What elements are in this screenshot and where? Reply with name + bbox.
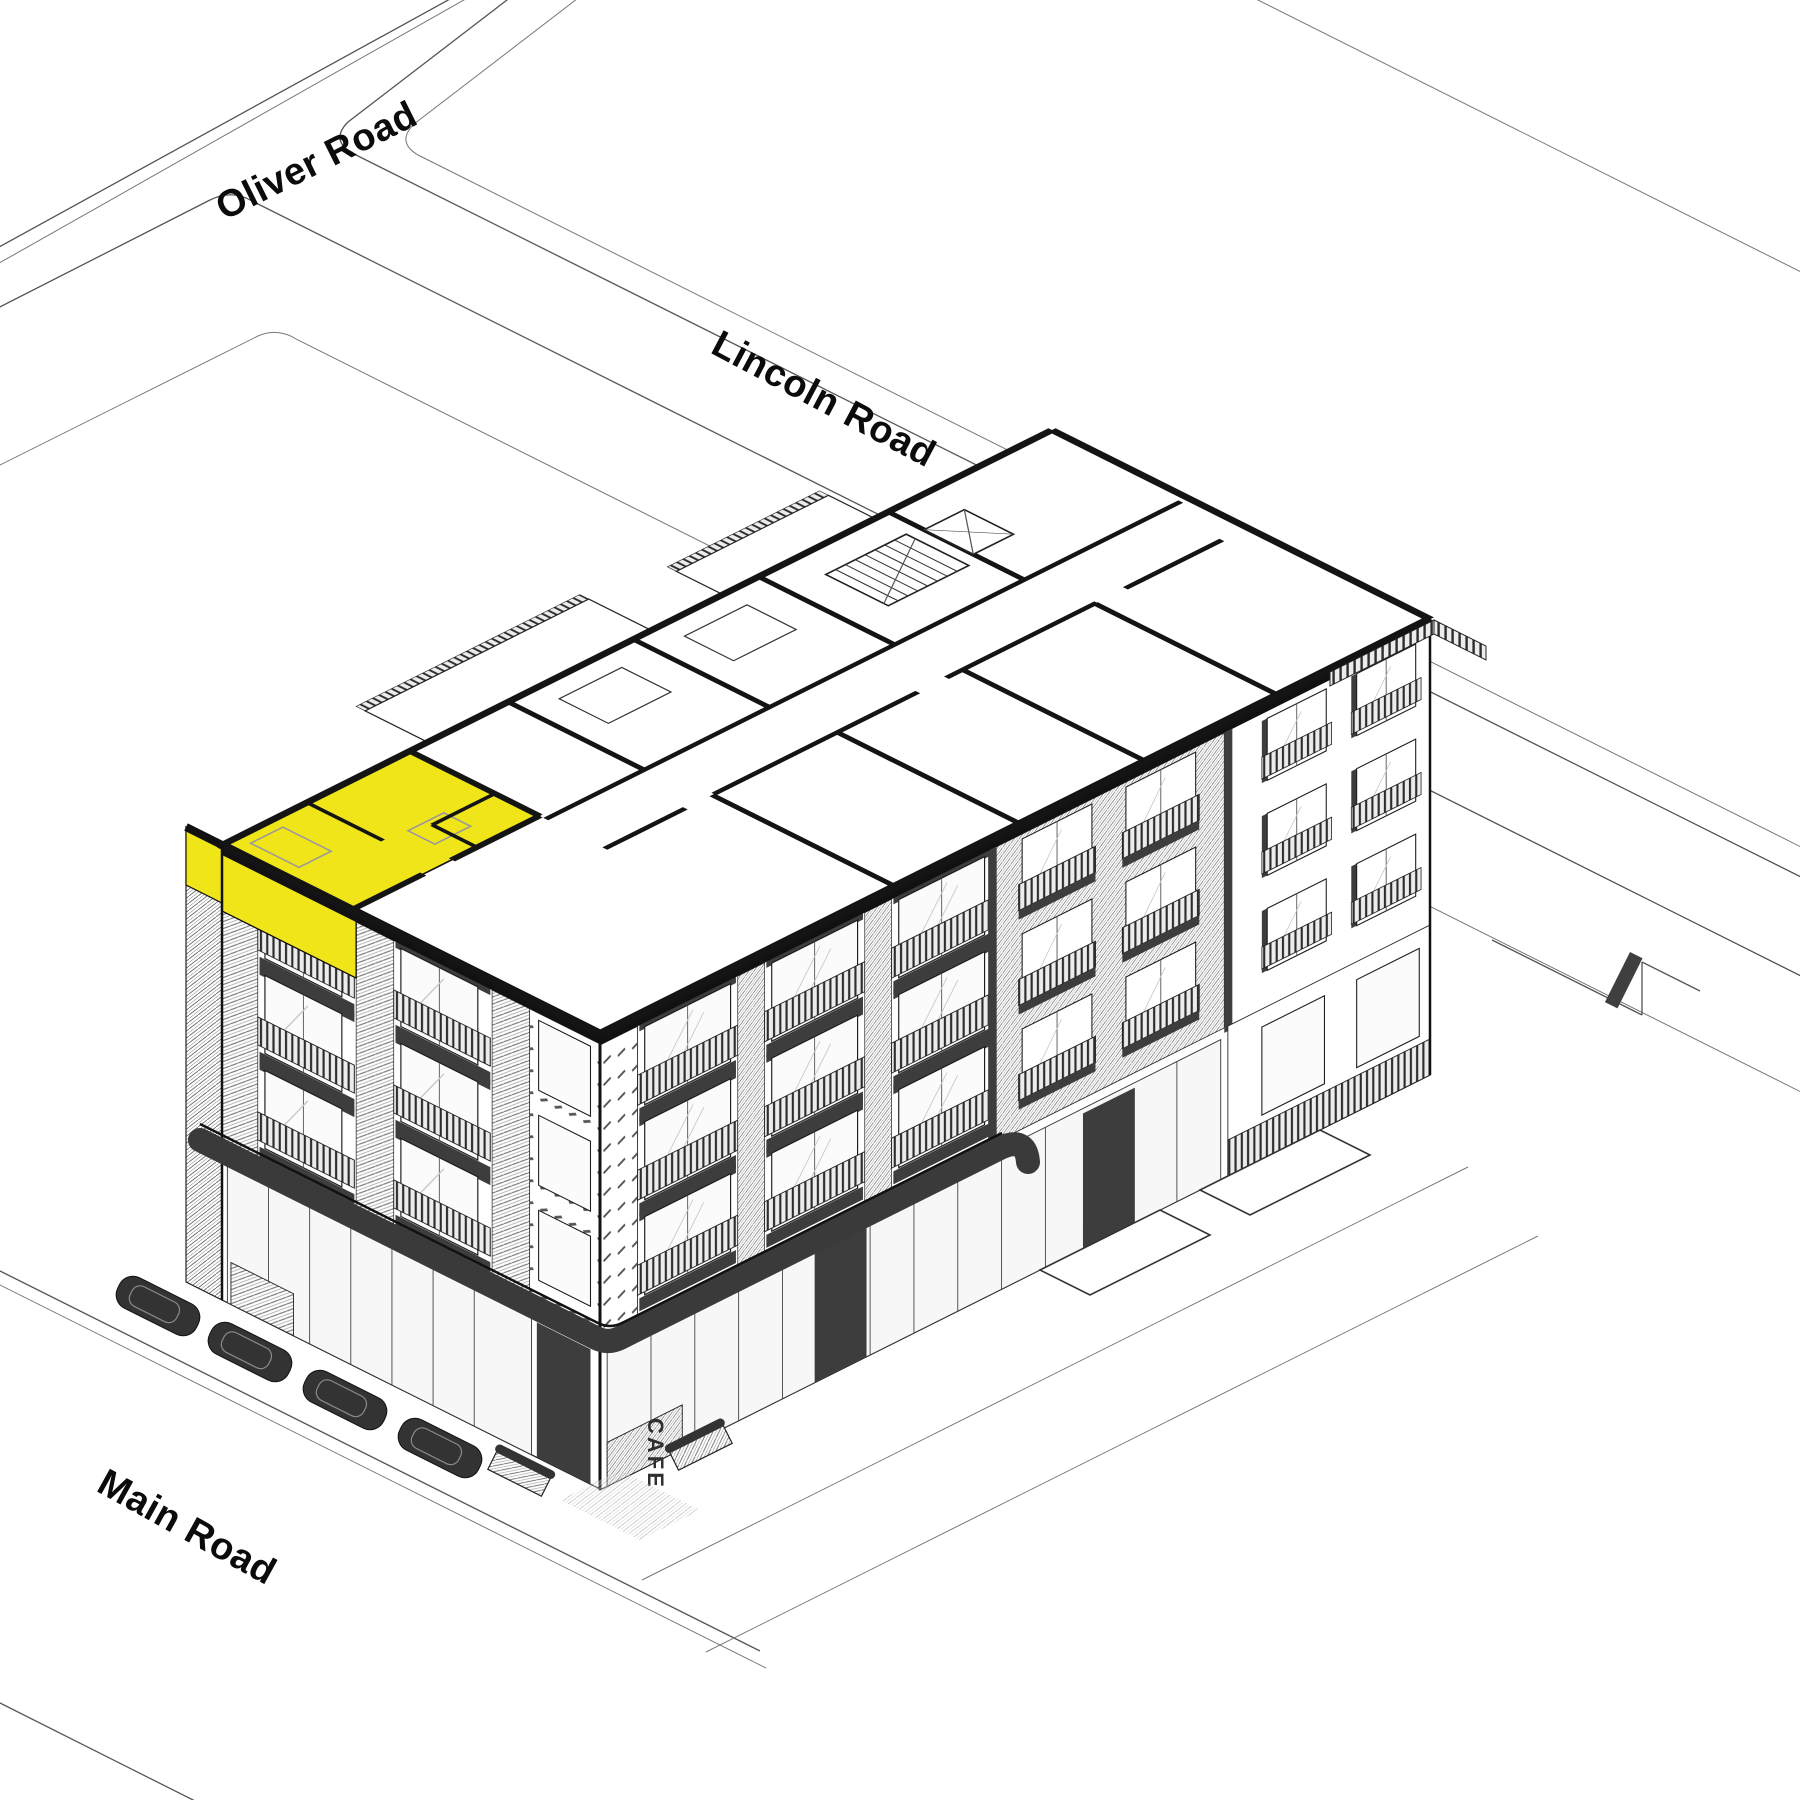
dark-fin xyxy=(1224,729,1232,1033)
main-road-label: Main Road xyxy=(91,1461,283,1593)
cafe-sign: CAFE xyxy=(643,1418,668,1490)
axonometric-drawing: CAFE Oliver Road Lincoln Road Main Road xyxy=(0,0,1800,1800)
window-bay xyxy=(638,972,738,1312)
rear-yard xyxy=(1492,940,1700,1015)
site-diagram: CAFE Oliver Road Lincoln Road Main Road xyxy=(0,0,1800,1800)
building: CAFE xyxy=(186,430,1700,1490)
yard-gate xyxy=(1605,952,1643,1008)
west-return-face xyxy=(186,827,222,1300)
brick-pier xyxy=(865,899,892,1207)
corner-pier-ticks xyxy=(600,1026,638,1340)
brick-pier xyxy=(738,963,765,1271)
dark-fin xyxy=(988,847,996,1151)
corner-paving xyxy=(560,1470,700,1540)
cafe-entry-door xyxy=(537,1322,591,1484)
window-bay xyxy=(765,909,865,1249)
cross-street-line xyxy=(1238,0,1800,274)
window-bay xyxy=(394,937,491,1275)
entry-door xyxy=(1083,1088,1135,1249)
brick-pier xyxy=(492,990,530,1304)
window-bay xyxy=(892,845,992,1185)
brick-pier xyxy=(356,922,394,1236)
main-road-far-curb xyxy=(0,1698,215,1800)
